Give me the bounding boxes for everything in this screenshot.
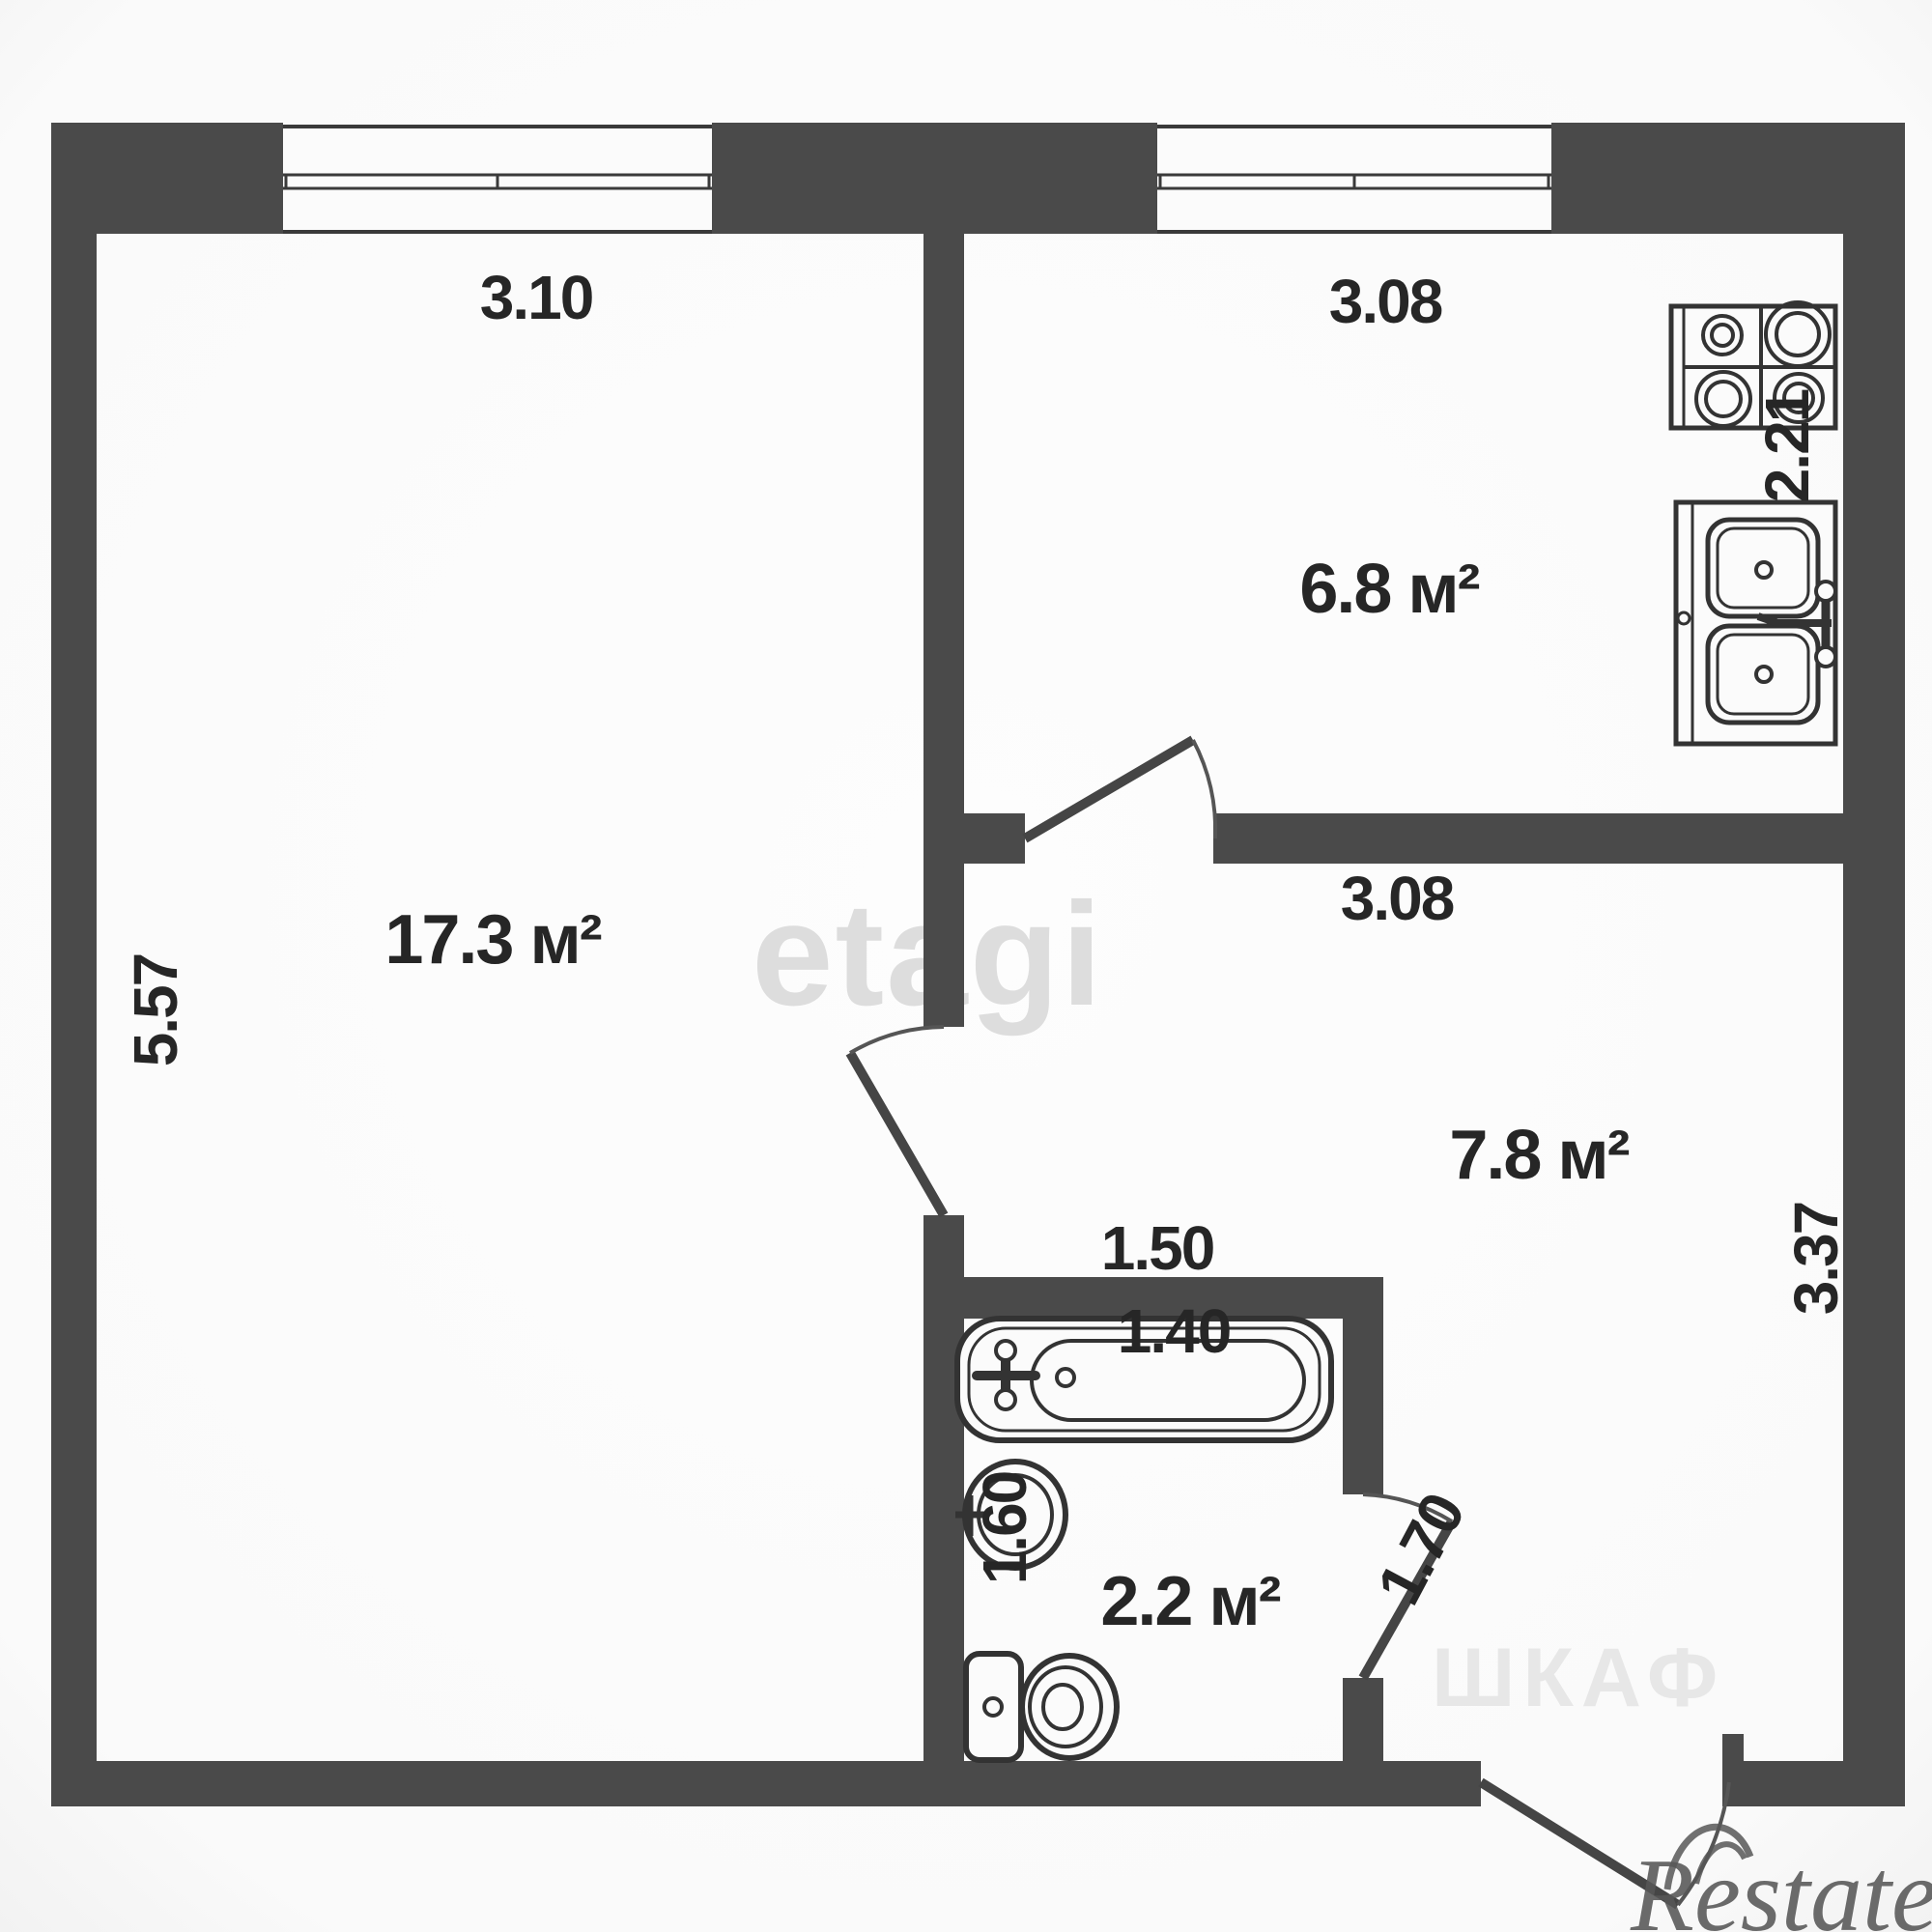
wall-bottom-left	[51, 1761, 1481, 1806]
wall-entrance-jamb	[1722, 1734, 1744, 1761]
floor-plan-image: etagi ШКАФ	[0, 0, 1932, 1932]
dim-bathroom-width: 1.50	[1101, 1213, 1214, 1283]
area-living: 17.3 м²	[384, 901, 601, 979]
toilet-icon	[966, 1654, 1117, 1760]
dim-hallway-width: 3.08	[1341, 864, 1454, 933]
kitchen-sink-drain-bottom	[1756, 667, 1772, 682]
toilet-tank	[966, 1654, 1021, 1760]
wall-bottom-right	[1722, 1761, 1905, 1806]
wall-kitchen-bottom-left	[923, 813, 1025, 864]
dim-bathtub-length: 1.40	[1118, 1296, 1231, 1366]
wall-right	[1843, 123, 1905, 1806]
dim-bathroom-depth: 1.60	[970, 1472, 1039, 1585]
window-living-icon	[283, 123, 712, 234]
watermark-restate-text: Restate	[1630, 1838, 1932, 1932]
wall-bathroom-right-upper	[1343, 1277, 1383, 1494]
wall-central-upper	[923, 234, 964, 1027]
dim-hallway-depth: 3.37	[1781, 1203, 1851, 1316]
wall-left	[51, 123, 97, 1806]
wall-bathroom-right-stub	[1343, 1678, 1383, 1761]
kitchen-sink-faucet-knob-bottom	[1816, 647, 1835, 667]
wall-kitchen-bottom-right	[1213, 813, 1843, 864]
kitchen-sink-icon	[1676, 502, 1835, 744]
bathtub-drain	[1057, 1369, 1074, 1386]
dim-kitchen-width: 3.08	[1329, 267, 1442, 336]
kitchen-sink-drain-top	[1756, 562, 1772, 578]
bathtub-faucet-knob-top	[996, 1341, 1015, 1360]
bathtub-faucet-knob-bottom	[996, 1390, 1015, 1409]
window-kitchen-icon	[1157, 123, 1551, 234]
area-kitchen: 6.8 м²	[1299, 551, 1479, 628]
dim-living-width: 3.10	[480, 263, 593, 332]
area-hallway: 7.8 м²	[1449, 1117, 1629, 1194]
dim-kitchen-depth: 2.21	[1752, 389, 1822, 502]
floor-plan-svg: etagi ШКАФ	[0, 0, 1932, 1932]
dim-living-height: 5.57	[121, 954, 190, 1067]
watermark-closet: ШКАФ	[1432, 1632, 1725, 1724]
kitchen-sink-faucet-knob-top	[1816, 582, 1835, 601]
area-bathroom: 2.2 м²	[1100, 1563, 1280, 1640]
wall-top-middle	[712, 123, 1157, 234]
watermark-restate: Restate	[1630, 1827, 1932, 1932]
